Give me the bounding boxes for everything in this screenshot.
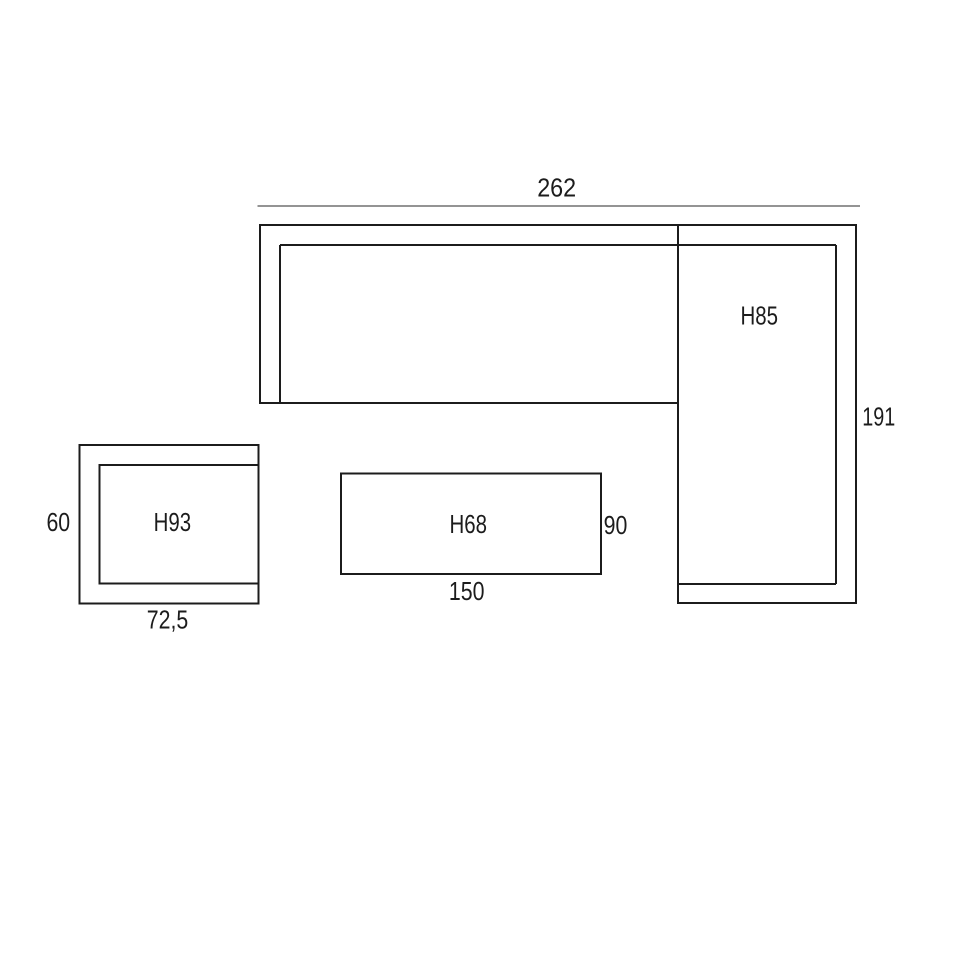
svg-text:90: 90 bbox=[604, 510, 628, 540]
svg-text:191: 191 bbox=[862, 401, 895, 431]
svg-text:72,5: 72,5 bbox=[147, 605, 189, 635]
svg-text:60: 60 bbox=[46, 507, 70, 537]
svg-text:H85: H85 bbox=[740, 301, 778, 331]
svg-text:H93: H93 bbox=[154, 507, 192, 537]
svg-text:262: 262 bbox=[537, 173, 576, 203]
svg-text:150: 150 bbox=[449, 576, 485, 606]
svg-text:H68: H68 bbox=[450, 509, 488, 539]
